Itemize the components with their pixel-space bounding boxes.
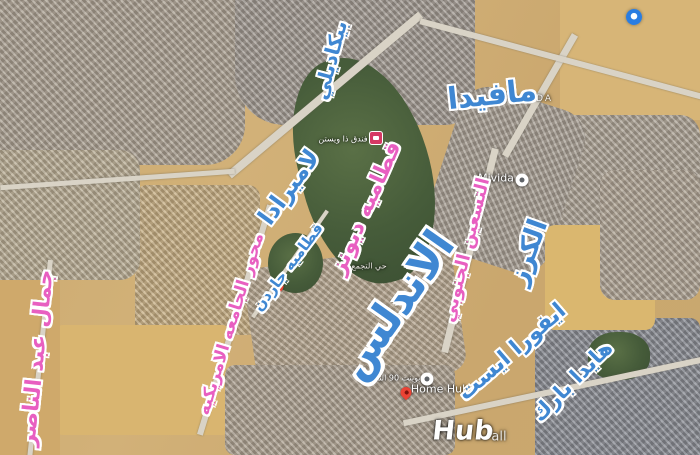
urban-area (0, 150, 140, 280)
map-label-hub-suffix: all (491, 430, 506, 445)
blue-circle-watermark-icon (626, 9, 642, 25)
map-label-westin-hotel[interactable]: فندق ذا ويستن (318, 135, 367, 144)
poi-circle-icon[interactable] (516, 174, 529, 187)
satellite-map[interactable]: بيكاديلي مافيدا لاميرادا قطاميه ديونز قط… (0, 0, 700, 455)
poi-circle-icon[interactable] (421, 373, 434, 386)
map-label-hay-tagamoa: حي التجمع (351, 262, 386, 271)
map-label-hub-mall: Hub (431, 416, 495, 447)
urban-area (0, 0, 245, 165)
urban-area (600, 170, 700, 300)
